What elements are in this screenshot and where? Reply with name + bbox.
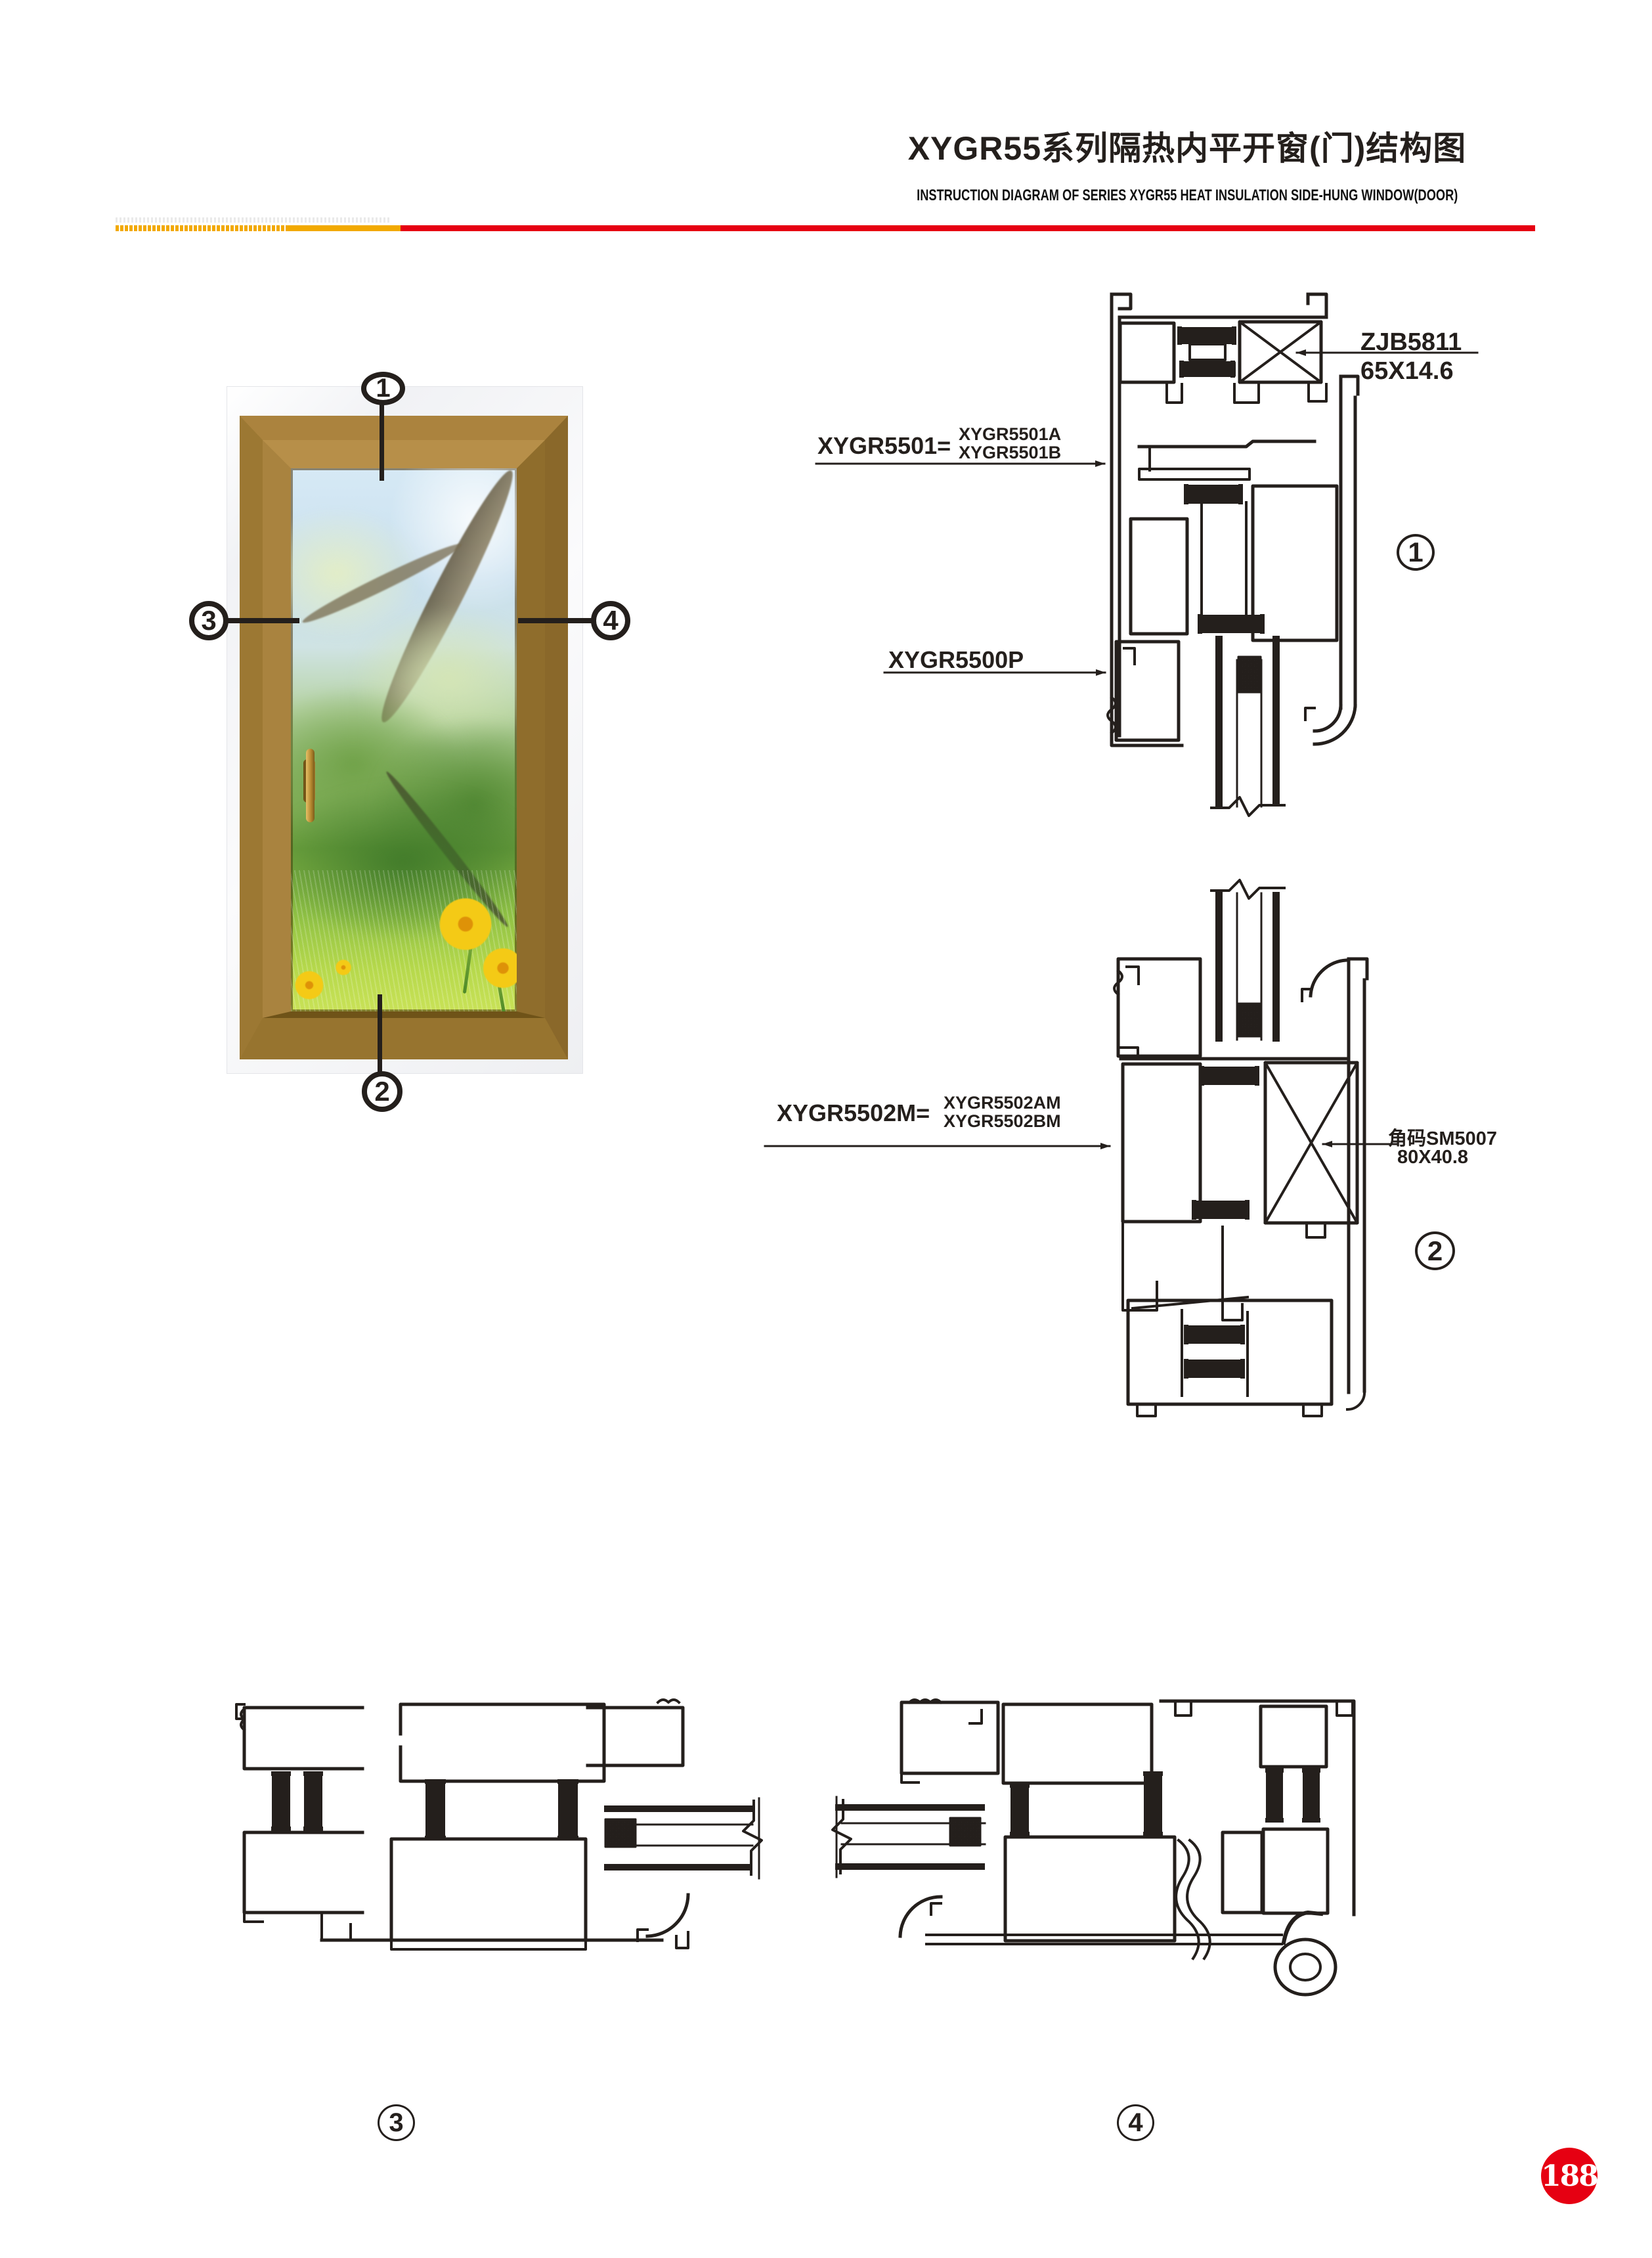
section-4-drawing [833, 1700, 1354, 1995]
section-3-drawing [236, 1700, 762, 1949]
label-sm5007-size: 80X40.8 [1397, 1147, 1468, 1168]
section-callout-2: 2 [1415, 1231, 1455, 1270]
section-callout-3-num: 3 [389, 2108, 403, 2138]
page-number: 188 [1541, 2159, 1598, 2193]
section-callout-3: 3 [378, 2104, 415, 2141]
section-callout-4: 4 [1117, 2104, 1154, 2141]
label-xygr5502am: XYGR5502AM [944, 1093, 1061, 1113]
catalog-page: { "header": { "title_zh": "XYGR55系列隔热内平开… [0, 0, 1652, 2258]
label-xygr5501b: XYGR5501B [959, 443, 1061, 463]
label-xygr5502bm: XYGR5502BM [944, 1111, 1061, 1132]
label-xygr5500p: XYGR5500P [888, 646, 1024, 674]
section-2-drawing [1114, 880, 1367, 1416]
section-callout-2-num: 2 [1427, 1235, 1443, 1267]
label-xygr5501: XYGR5501= [817, 432, 951, 460]
section-callout-4-num: 4 [1128, 2108, 1142, 2138]
label-xygr5502m: XYGR5502M= [777, 1099, 930, 1127]
label-zjb5811: ZJB5811 [1360, 328, 1462, 357]
section-1-drawing [1108, 294, 1358, 816]
section-callout-1: 1 [1397, 534, 1435, 571]
label-xygr5501a: XYGR5501A [959, 424, 1061, 445]
section-callout-1-num: 1 [1408, 537, 1423, 568]
page-number-badge: 188 [1541, 2148, 1598, 2204]
label-zjb5811-size: 65X14.6 [1360, 357, 1454, 386]
